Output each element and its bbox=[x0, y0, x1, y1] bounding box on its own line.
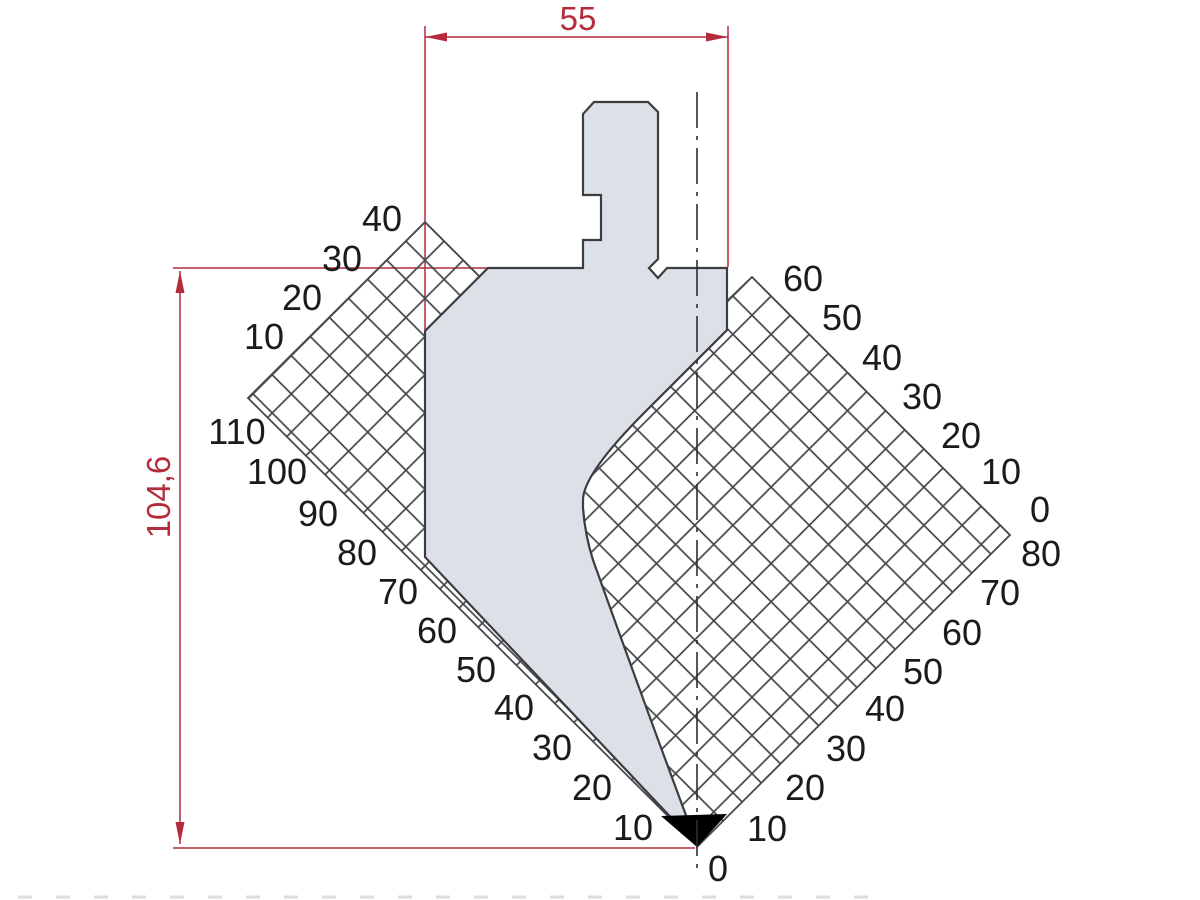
arrowhead-top bbox=[176, 271, 185, 293]
scale-label: 10 bbox=[747, 808, 787, 849]
scale-label: 40 bbox=[494, 687, 534, 728]
scale-label: 90 bbox=[298, 493, 338, 534]
scale-label: 60 bbox=[942, 612, 982, 653]
scale-label: 70 bbox=[980, 572, 1020, 613]
scale-label: 50 bbox=[903, 651, 943, 692]
punch-technical-drawing: 55 104,6 40302010 1101009080706050403020… bbox=[0, 0, 1200, 900]
scale-label: 30 bbox=[532, 727, 572, 768]
punch-tip bbox=[661, 814, 727, 847]
arrowhead-bottom bbox=[176, 822, 185, 844]
scale-label: 60 bbox=[783, 258, 823, 299]
scale-label: 50 bbox=[456, 649, 496, 690]
scale-label: 110 bbox=[208, 411, 265, 452]
scale-label: 60 bbox=[417, 610, 457, 651]
arrowhead-right bbox=[706, 33, 728, 42]
scale-label: 70 bbox=[378, 571, 418, 612]
scale-label: 10 bbox=[244, 316, 284, 357]
scale-label: 40 bbox=[862, 337, 902, 378]
origin-label: 0 bbox=[708, 848, 728, 889]
scale-label: 0 bbox=[1030, 489, 1050, 530]
scale-label: 20 bbox=[941, 415, 981, 456]
dimension-height-value: 104,6 bbox=[140, 456, 177, 539]
scale-label: 30 bbox=[826, 728, 866, 769]
scale-label: 40 bbox=[865, 688, 905, 729]
scale-label: 100 bbox=[247, 451, 307, 492]
scale-label: 10 bbox=[981, 451, 1021, 492]
scale-label: 30 bbox=[902, 376, 942, 417]
scale-label: 20 bbox=[572, 767, 612, 808]
dimension-width-value: 55 bbox=[560, 0, 597, 37]
scale-label: 50 bbox=[822, 297, 862, 338]
scale-label: 30 bbox=[322, 238, 362, 279]
scale-label: 80 bbox=[337, 532, 377, 573]
scale-label: 20 bbox=[282, 277, 322, 318]
arrowhead-left bbox=[425, 33, 447, 42]
drawing-canvas: 55 104,6 40302010 1101009080706050403020… bbox=[0, 0, 1200, 900]
scale-label: 20 bbox=[785, 767, 825, 808]
scale-label: 10 bbox=[613, 807, 653, 848]
scale-label: 40 bbox=[362, 198, 402, 239]
scale-label: 80 bbox=[1021, 533, 1061, 574]
